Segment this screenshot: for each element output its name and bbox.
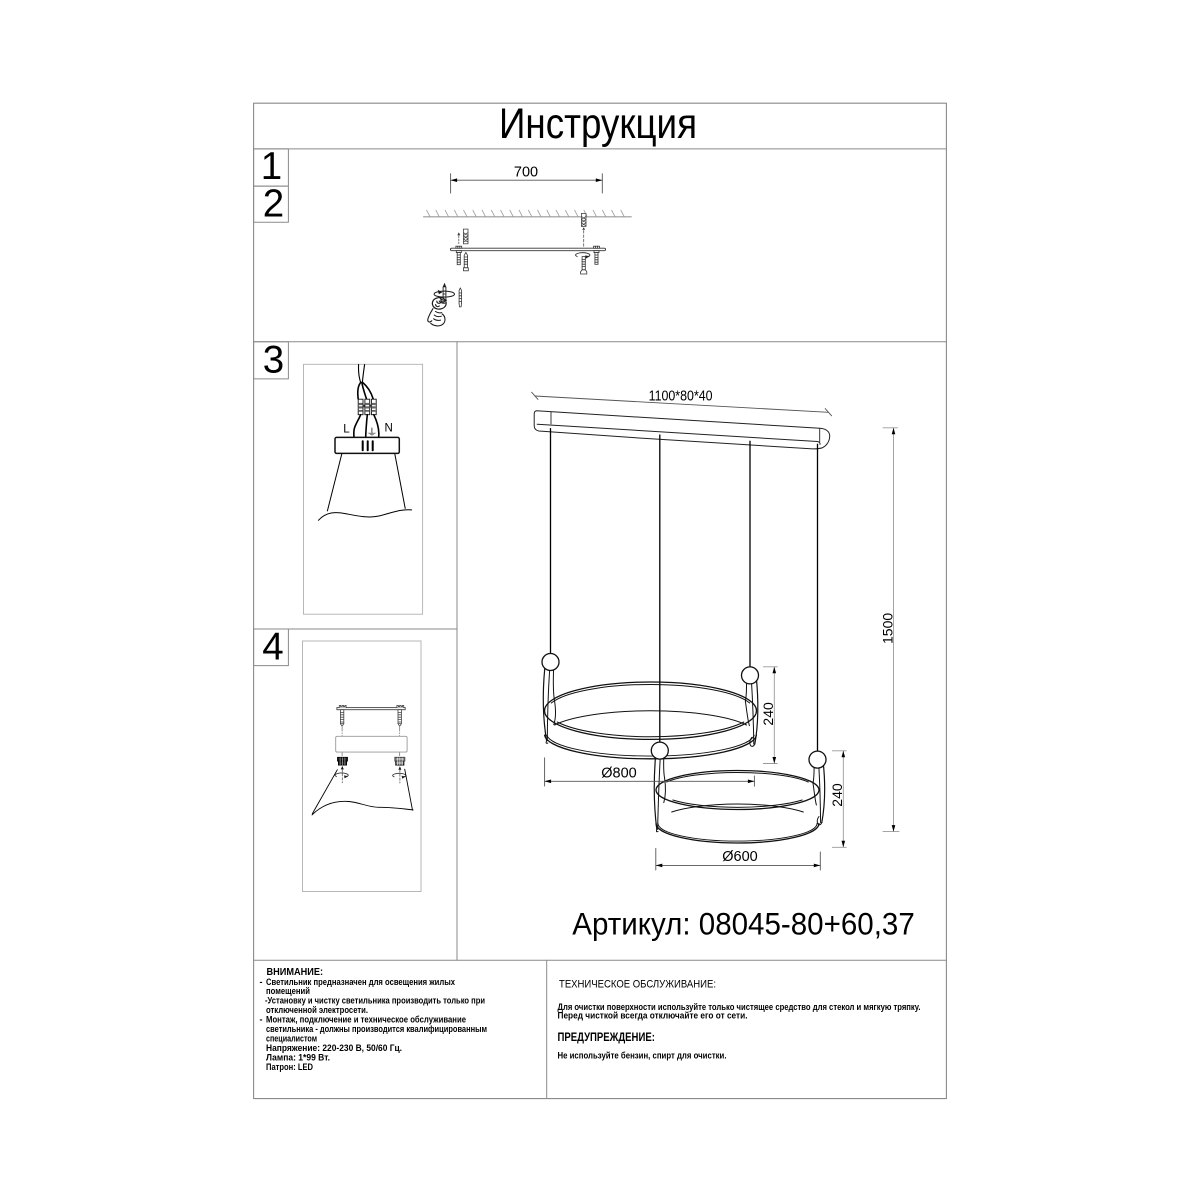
svg-text:-: - <box>260 977 263 987</box>
svg-text:L: L <box>343 424 350 436</box>
svg-text:Инструкция: Инструкция <box>499 101 697 148</box>
svg-text:ПРЕДУПРЕЖДЕНИЕ:: ПРЕДУПРЕЖДЕНИЕ: <box>558 1032 655 1044</box>
svg-text:-Установку и чистку светильник: -Установку и чистку светильника производ… <box>265 996 485 1006</box>
svg-text:1100*80*40: 1100*80*40 <box>649 389 713 405</box>
svg-text:Патрон: LED: Патрон: LED <box>266 1062 313 1072</box>
svg-text:700: 700 <box>514 165 538 181</box>
svg-text:2: 2 <box>263 183 284 226</box>
svg-text:ТЕХНИЧЕСКОЕ ОБСЛУЖИВАНИЕ:: ТЕХНИЧЕСКОЕ ОБСЛУЖИВАНИЕ: <box>559 979 716 991</box>
svg-text:Лампа: 1*99 Вт.: Лампа: 1*99 Вт. <box>266 1052 330 1062</box>
svg-text:1500: 1500 <box>879 613 895 644</box>
svg-text:3: 3 <box>263 339 284 382</box>
svg-text:240: 240 <box>829 783 845 807</box>
svg-text:N: N <box>385 422 393 434</box>
svg-text:Артикул: 08045-80+60,37: Артикул: 08045-80+60,37 <box>572 905 915 941</box>
svg-text:Ø600: Ø600 <box>722 849 757 865</box>
svg-text:помещений: помещений <box>266 986 310 996</box>
svg-text:Не используйте бензин, спирт д: Не используйте бензин, спирт для очистки… <box>558 1051 727 1061</box>
svg-text:-: - <box>260 1015 263 1025</box>
svg-text:Перед чисткой всегда отключайт: Перед чисткой всегда отключайте его от с… <box>558 1010 748 1020</box>
svg-text:Ø800: Ø800 <box>601 766 636 782</box>
svg-text:светильника - должны производи: светильника - должны производится квалиф… <box>266 1024 487 1034</box>
svg-text:4: 4 <box>262 626 283 669</box>
svg-text:240: 240 <box>760 702 776 726</box>
svg-text:специалистом: специалистом <box>266 1034 317 1044</box>
